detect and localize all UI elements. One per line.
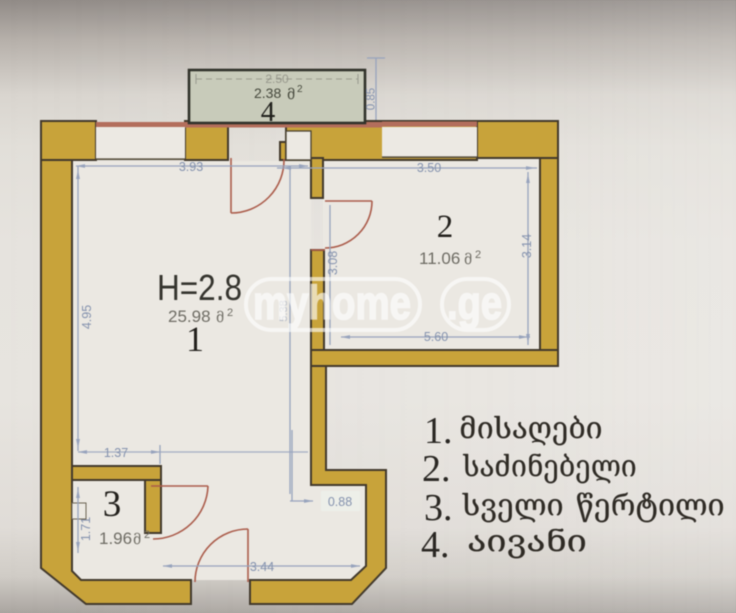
svg-text:0.88: 0.88 <box>328 495 352 509</box>
svg-text:.ge: .ge <box>447 276 502 329</box>
svg-text:2: 2 <box>475 249 481 261</box>
svg-text:3.93: 3.93 <box>179 160 203 174</box>
svg-text:2: 2 <box>297 84 303 95</box>
svg-text:5.60: 5.60 <box>424 330 448 344</box>
svg-text:1.37: 1.37 <box>104 446 128 460</box>
svg-text:11.06: 11.06 <box>419 249 460 268</box>
svg-text:1.71: 1.71 <box>79 517 93 541</box>
svg-text:2: 2 <box>437 209 454 245</box>
svg-text:2.: 2. <box>422 448 451 490</box>
svg-text:2: 2 <box>227 307 233 319</box>
svg-text:4: 4 <box>261 96 276 128</box>
svg-text:4.: 4. <box>421 524 450 566</box>
svg-text:2.50: 2.50 <box>265 72 289 86</box>
svg-text:1: 1 <box>186 319 204 359</box>
svg-text:1.96: 1.96 <box>99 529 132 548</box>
svg-text:3.08: 3.08 <box>326 251 340 275</box>
svg-text:H=2.8: H=2.8 <box>157 267 242 308</box>
svg-text:1.: 1. <box>424 410 453 452</box>
svg-text:3.50: 3.50 <box>417 161 441 175</box>
svg-text:0.85: 0.85 <box>366 88 378 110</box>
svg-text:3: 3 <box>103 484 122 525</box>
svg-text:4.95: 4.95 <box>80 305 94 329</box>
svg-text:3.44: 3.44 <box>250 560 274 574</box>
svg-text:myhome: myhome <box>253 276 411 329</box>
svg-text:3.: 3. <box>424 487 453 529</box>
svg-text:2: 2 <box>144 529 150 541</box>
svg-text:3.14: 3.14 <box>520 234 534 258</box>
